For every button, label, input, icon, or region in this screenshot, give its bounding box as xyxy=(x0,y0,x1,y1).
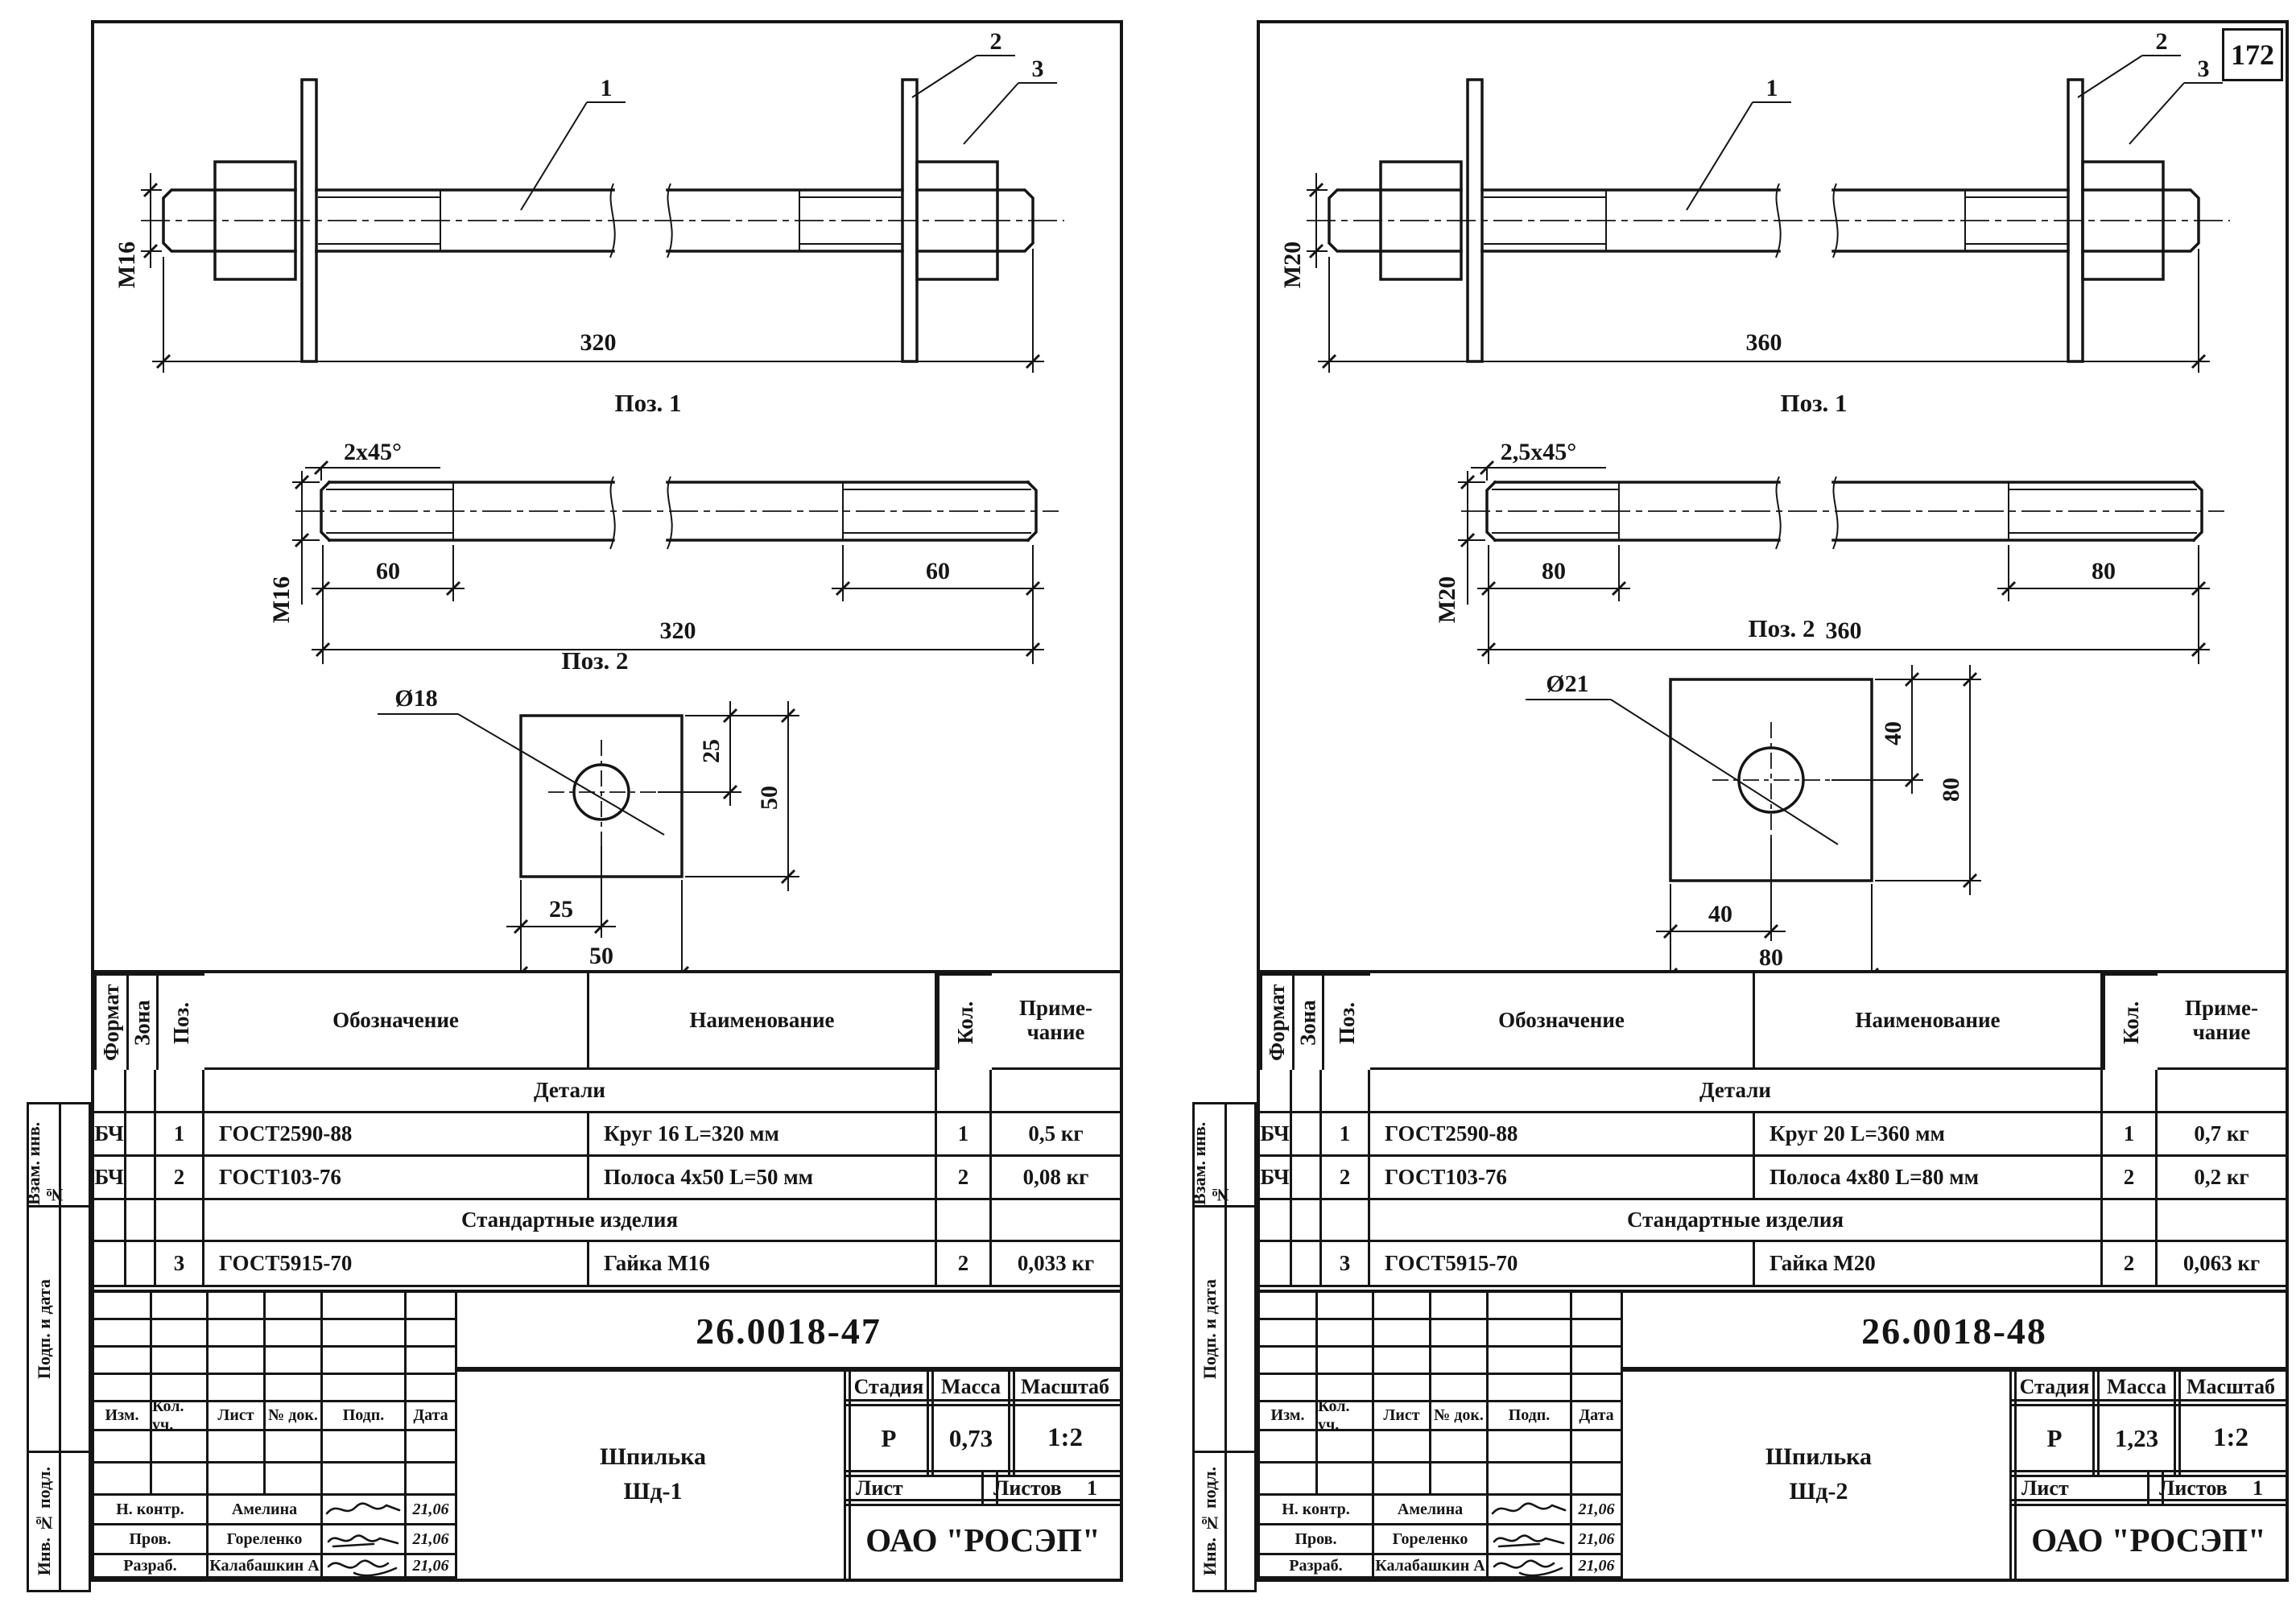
dim-side-horizontal: 50 xyxy=(589,943,613,969)
grid-cell xyxy=(94,1463,152,1496)
spec-row1-note: 0,7 кг xyxy=(2158,1113,2286,1157)
spec-row1-note: 0,5 кг xyxy=(992,1113,1120,1157)
grid-cell xyxy=(266,1375,323,1402)
dim-length-pos1: 360 xyxy=(1826,617,1862,644)
technical-drawing-left: 1 2 3 M16 320 Поз. 1 2x45° M16 60 60 320… xyxy=(94,23,1120,970)
sig-date-prov: 21,06 xyxy=(1572,1525,1623,1555)
spec-row1-zone xyxy=(1292,1113,1322,1157)
grid-cell xyxy=(1260,1320,1318,1348)
grid-cell xyxy=(323,1293,407,1320)
product-name-line2: Шд-2 xyxy=(1789,1474,1848,1509)
title-block: Изм. Кол. уч. Лист № док. Подп. Дата Н. … xyxy=(94,1290,1120,1579)
grid-cell xyxy=(152,1348,209,1375)
sidebar-box-podp: Подп. и дата xyxy=(1192,1205,1257,1453)
scale-value: 1:2 xyxy=(1008,1399,1120,1477)
dim-thread-right: 80 xyxy=(2092,558,2116,584)
grid-cell xyxy=(992,1070,1120,1113)
grid-cell xyxy=(266,1320,323,1348)
sidebar-box-inv: Инв. № подл. xyxy=(27,1451,91,1592)
grid-cell xyxy=(407,1375,457,1402)
dim-length-assembly: 360 xyxy=(1746,329,1782,356)
rev-header-izm: Изм. xyxy=(94,1402,152,1431)
grid-cell xyxy=(1374,1463,1431,1496)
col-header-note-line2: чание xyxy=(1027,1021,1085,1045)
signature-scribble xyxy=(1489,1555,1572,1579)
pos2-view-lines xyxy=(1526,665,1981,970)
grid-cell xyxy=(1374,1375,1431,1402)
spec-row2-format: БЧ xyxy=(94,1157,126,1200)
grid-cell xyxy=(152,1431,209,1463)
dim-diameter-pos1: M16 xyxy=(268,576,295,623)
grid-cell xyxy=(1431,1293,1489,1320)
sheets-label: Листов xyxy=(993,1476,1062,1501)
product-name: Шпилька Шд-1 xyxy=(455,1367,851,1579)
grid-cell xyxy=(323,1320,407,1348)
grid-cell xyxy=(126,1070,156,1113)
grid-cell xyxy=(1572,1463,1623,1496)
spec-row1-format: БЧ xyxy=(1260,1113,1292,1157)
grid-cell xyxy=(2103,1070,2158,1113)
pos1-title: Поз. 1 xyxy=(614,389,681,417)
grid-cell xyxy=(209,1375,266,1402)
revision-grid: Изм. Кол. уч. Лист № док. Подп. Дата Н. … xyxy=(1260,1293,1623,1579)
grid-cell xyxy=(266,1431,323,1463)
dim-side-vertical: 50 xyxy=(756,786,783,810)
spec-row3-pos: 3 xyxy=(1322,1242,1370,1287)
sig-name-prov: Гореленко xyxy=(1374,1525,1489,1555)
spec-row3-format xyxy=(1260,1242,1292,1287)
grid-cell xyxy=(94,1375,152,1402)
col-header-note: Приме- чание xyxy=(992,973,1120,1070)
grid-cell xyxy=(1431,1348,1489,1375)
sig-role-ncontr: Н. контр. xyxy=(1260,1496,1374,1525)
title-block: Изм. Кол. уч. Лист № док. Подп. Дата Н. … xyxy=(1260,1290,2286,1579)
spec-row3-name: Гайка М20 xyxy=(1755,1242,2103,1287)
dim-length-assembly: 320 xyxy=(580,329,617,356)
spec-row3-name: Гайка М16 xyxy=(589,1242,937,1287)
rev-header-dok: № док. xyxy=(1431,1402,1489,1431)
spec-row3-note: 0,033 кг xyxy=(992,1242,1120,1287)
pos2-title: Поз. 2 xyxy=(561,646,628,675)
specification-table: Формат Зона Поз. Обозначение Наименовани… xyxy=(1260,970,2286,1287)
grid-cell xyxy=(2158,1070,2286,1113)
sidebar-box-vzam: Взам. инв. № xyxy=(1192,1102,1257,1207)
spec-row1-name: Круг 16 L=320 мм xyxy=(589,1113,937,1157)
callout-1: 1 xyxy=(1766,75,1778,101)
product-name-line1: Шпилька xyxy=(600,1439,706,1475)
spec-row2-format: БЧ xyxy=(1260,1157,1292,1200)
spec-row1-qty: 1 xyxy=(2103,1113,2158,1157)
spec-row3-designation: ГОСТ5915-70 xyxy=(204,1242,589,1287)
rev-header-podp: Подп. xyxy=(323,1402,407,1431)
dim-diameter-assembly: M16 xyxy=(114,242,140,288)
callout-3: 3 xyxy=(2198,56,2210,82)
col-header-qty: Кол. xyxy=(937,973,992,1070)
rev-header-data: Дата xyxy=(407,1402,457,1431)
grid-cell xyxy=(152,1293,209,1320)
grid-cell xyxy=(1489,1293,1572,1320)
spec-row3-zone xyxy=(1292,1242,1322,1287)
col-header-zone: Зона xyxy=(1292,973,1322,1070)
sidebar-fill xyxy=(1227,1104,1254,1205)
pos1-title: Поз. 1 xyxy=(1780,389,1847,417)
spec-row3-pos: 3 xyxy=(156,1242,204,1287)
spec-row3-format xyxy=(94,1242,126,1287)
grid-cell xyxy=(1260,1293,1318,1320)
grid-cell xyxy=(1318,1463,1374,1496)
dim-chamfer: 2x45° xyxy=(344,439,402,465)
frame-sidebar: Взам. инв. № Подп. и дата Инв. № подл. xyxy=(1192,1102,1257,1592)
sidebar-fill xyxy=(61,1453,89,1590)
sig-date-razrab: 21,06 xyxy=(407,1555,457,1579)
sidebar-label-inv: Инв. № подл. xyxy=(1200,1467,1220,1575)
spec-row1-name: Круг 20 L=360 мм xyxy=(1755,1113,2103,1157)
dim-offset-horizontal: 40 xyxy=(1708,901,1732,927)
spec-row3-zone xyxy=(126,1242,156,1287)
grid-cell xyxy=(1572,1293,1623,1320)
spec-row2-qty: 2 xyxy=(2103,1157,2158,1200)
sidebar-box-vzam: Взам. инв. № xyxy=(27,1102,91,1207)
pos2-title: Поз. 2 xyxy=(1748,614,1815,642)
section-title-details: Детали xyxy=(204,1070,937,1113)
pos2-view-lines xyxy=(378,701,799,970)
grid-cell xyxy=(1572,1320,1623,1348)
spec-row2-designation: ГОСТ103-76 xyxy=(1370,1157,1755,1200)
drawing-sheet-left: 1 2 3 M16 320 Поз. 1 2x45° M16 60 60 320… xyxy=(91,20,1123,1582)
drawing-sheet-right: 172 1 2 3 M20 360 Поз. 1 2,5x45° M20 80 … xyxy=(1257,20,2289,1582)
assembly-view-lines xyxy=(1307,56,2230,373)
grid-cell xyxy=(1260,1375,1318,1402)
col-header-note-line2: чание xyxy=(2193,1021,2251,1045)
sidebar-fill xyxy=(61,1207,89,1451)
grid-cell xyxy=(2158,1200,2286,1242)
grid-cell xyxy=(1260,1431,1318,1463)
mass-value: 1,23 xyxy=(2092,1399,2181,1477)
col-header-name: Наименование xyxy=(589,973,937,1070)
section-title-standard: Стандартные изделия xyxy=(1370,1200,2103,1242)
revision-grid: Изм. Кол. уч. Лист № док. Подп. Дата Н. … xyxy=(94,1293,457,1579)
stage-value: Р xyxy=(2009,1399,2100,1477)
callout-1: 1 xyxy=(601,75,613,101)
grid-cell xyxy=(992,1200,1120,1242)
callout-3: 3 xyxy=(1032,56,1044,82)
grid-cell xyxy=(1318,1431,1374,1463)
sidebar-fill xyxy=(1227,1453,1254,1590)
grid-cell xyxy=(266,1463,323,1496)
sheets-label: Листов xyxy=(2159,1476,2228,1501)
grid-cell xyxy=(1292,1070,1322,1113)
assembly-view-lines xyxy=(141,56,1064,373)
dim-offset-vertical: 40 xyxy=(1880,721,1906,745)
grid-cell xyxy=(1374,1348,1431,1375)
grid-cell xyxy=(156,1070,204,1113)
spec-row1-zone xyxy=(126,1113,156,1157)
sidebar-label-podp: Подп. и дата xyxy=(1200,1279,1220,1379)
grid-cell xyxy=(1489,1431,1572,1463)
grid-cell xyxy=(1431,1463,1489,1496)
scale-value: 1:2 xyxy=(2174,1399,2286,1477)
sig-role-razrab: Разраб. xyxy=(94,1555,209,1579)
stage-value: Р xyxy=(844,1399,934,1477)
spec-row3-note: 0,063 кг xyxy=(2158,1242,2286,1287)
grid-cell xyxy=(1318,1375,1374,1402)
sig-role-prov: Пров. xyxy=(94,1525,209,1555)
grid-cell xyxy=(323,1431,407,1463)
dim-thread-left: 80 xyxy=(1542,558,1566,584)
col-header-pos: Поз. xyxy=(156,973,204,1070)
product-name: Шпилька Шд-2 xyxy=(1621,1367,2017,1579)
col-header-name: Наименование xyxy=(1755,973,2103,1070)
grid-cell xyxy=(266,1348,323,1375)
grid-cell xyxy=(152,1463,209,1496)
grid-cell xyxy=(1260,1070,1292,1113)
spec-row2-zone xyxy=(126,1157,156,1200)
col-header-designation: Обозначение xyxy=(204,973,589,1070)
rev-header-list: Лист xyxy=(209,1402,266,1431)
grid-cell xyxy=(323,1375,407,1402)
grid-cell xyxy=(94,1320,152,1348)
grid-cell xyxy=(1318,1320,1374,1348)
grid-cell xyxy=(1318,1348,1374,1375)
dim-length-pos1: 320 xyxy=(660,617,696,644)
spec-row1-format: БЧ xyxy=(94,1113,126,1157)
grid-cell xyxy=(2103,1200,2158,1242)
signature-scribble xyxy=(1489,1496,1572,1525)
col-header-format: Формат xyxy=(1260,973,1292,1070)
grid-cell xyxy=(937,1070,992,1113)
sig-date-prov: 21,06 xyxy=(407,1525,457,1555)
spec-row2-qty: 2 xyxy=(937,1157,992,1200)
col-header-zone: Зона xyxy=(126,973,156,1070)
grid-cell xyxy=(266,1293,323,1320)
rev-header-list: Лист xyxy=(1374,1402,1431,1431)
spec-row2-name: Полоса 4x80 L=80 мм xyxy=(1755,1157,2103,1200)
dim-side-horizontal: 80 xyxy=(1759,944,1783,970)
grid-cell xyxy=(1374,1293,1431,1320)
callout-2: 2 xyxy=(2156,28,2168,55)
sheets-count: 1 xyxy=(1087,1476,1097,1501)
sidebar-label-vzam: Взам. инв. № xyxy=(1189,1104,1231,1205)
grid-cell xyxy=(1489,1463,1572,1496)
sig-name-ncontr: Амелина xyxy=(1374,1496,1489,1525)
grid-cell xyxy=(1489,1375,1572,1402)
sidebar-label-inv: Инв. № подл. xyxy=(34,1467,55,1575)
grid-cell xyxy=(94,1293,152,1320)
sidebar-label-podp: Подп. и дата xyxy=(34,1279,55,1379)
rev-header-koluch: Кол. уч. xyxy=(1318,1402,1374,1431)
sig-date-ncontr: 21,06 xyxy=(1572,1496,1623,1525)
grid-cell xyxy=(1260,1348,1318,1375)
mass-value: 0,73 xyxy=(927,1399,1015,1477)
callout-2: 2 xyxy=(990,28,1002,55)
grid-cell xyxy=(407,1293,457,1320)
grid-cell xyxy=(152,1320,209,1348)
grid-cell xyxy=(94,1070,126,1113)
dim-offset-vertical: 25 xyxy=(698,739,725,763)
col-header-note-line1: Приме- xyxy=(1019,997,1092,1021)
grid-cell xyxy=(1489,1320,1572,1348)
grid-cell xyxy=(407,1463,457,1496)
grid-cell xyxy=(209,1431,266,1463)
sig-name-prov: Гореленко xyxy=(209,1525,323,1555)
col-header-qty: Кол. xyxy=(2103,973,2158,1070)
grid-cell xyxy=(209,1463,266,1496)
signature-scribble xyxy=(323,1555,407,1579)
specification-table: Формат Зона Поз. Обозначение Наименовани… xyxy=(94,970,1120,1287)
signature-scribble xyxy=(323,1525,407,1555)
sidebar-box-podp: Подп. и дата xyxy=(27,1205,91,1453)
rev-header-dok: № док. xyxy=(266,1402,323,1431)
spec-row1-designation: ГОСТ2590-88 xyxy=(204,1113,589,1157)
grid-cell xyxy=(1260,1200,1292,1242)
col-header-note: Приме- чание xyxy=(2158,973,2286,1070)
grid-cell xyxy=(1489,1348,1572,1375)
grid-cell xyxy=(1322,1070,1370,1113)
spec-row2-zone xyxy=(1292,1157,1322,1200)
spec-row1-pos: 1 xyxy=(156,1113,204,1157)
company-name: ОАО "РОСЭП" xyxy=(844,1499,1120,1579)
frame-sidebar: Взам. инв. № Подп. и дата Инв. № подл. xyxy=(27,1102,91,1592)
dim-offset-horizontal: 25 xyxy=(549,896,573,923)
sig-name-ncontr: Амелина xyxy=(209,1496,323,1525)
col-header-note-line1: Приме- xyxy=(2185,997,2258,1021)
spec-row1-pos: 1 xyxy=(1322,1113,1370,1157)
document-number: 26.0018-48 xyxy=(1621,1293,2286,1372)
rev-header-data: Дата xyxy=(1572,1402,1623,1431)
section-title-details: Детали xyxy=(1370,1070,2103,1113)
rev-header-izm: Изм. xyxy=(1260,1402,1318,1431)
rev-header-podp: Подп. xyxy=(1489,1402,1572,1431)
spec-row2-note: 0,2 кг xyxy=(2158,1157,2286,1200)
grid-cell xyxy=(1431,1431,1489,1463)
product-name-line1: Шпилька xyxy=(1765,1439,1872,1475)
grid-cell xyxy=(323,1463,407,1496)
grid-cell xyxy=(209,1293,266,1320)
spec-row3-qty: 2 xyxy=(2103,1242,2158,1287)
dim-diameter-pos1: M20 xyxy=(1434,576,1460,623)
grid-cell xyxy=(1572,1431,1623,1463)
sidebar-box-inv: Инв. № подл. xyxy=(1192,1451,1257,1592)
spec-row3-qty: 2 xyxy=(937,1242,992,1287)
sidebar-label-vzam: Взам. инв. № xyxy=(23,1104,65,1205)
dim-chamfer: 2,5x45° xyxy=(1501,439,1577,465)
sig-name-razrab: Калабашкин А xyxy=(209,1555,323,1579)
grid-cell xyxy=(937,1200,992,1242)
grid-cell xyxy=(407,1431,457,1463)
dim-hole-diameter: Ø18 xyxy=(394,685,437,712)
grid-cell xyxy=(1374,1431,1431,1463)
spec-row3-designation: ГОСТ5915-70 xyxy=(1370,1242,1755,1287)
sidebar-fill xyxy=(1227,1207,1254,1451)
grid-cell xyxy=(1260,1463,1318,1496)
grid-cell xyxy=(1572,1348,1623,1375)
grid-cell xyxy=(156,1200,204,1242)
rev-header-koluch: Кол. уч. xyxy=(152,1402,209,1431)
sig-date-ncontr: 21,06 xyxy=(407,1496,457,1525)
grid-cell xyxy=(152,1375,209,1402)
dim-thread-left: 60 xyxy=(376,558,400,584)
grid-cell xyxy=(94,1348,152,1375)
grid-cell xyxy=(407,1348,457,1375)
spec-row2-name: Полоса 4x50 L=50 мм xyxy=(589,1157,937,1200)
grid-cell xyxy=(1431,1320,1489,1348)
col-header-pos: Поз. xyxy=(1322,973,1370,1070)
document-number: 26.0018-47 xyxy=(455,1293,1120,1372)
grid-cell xyxy=(1292,1200,1322,1242)
grid-cell xyxy=(1322,1200,1370,1242)
dim-side-vertical: 80 xyxy=(1938,778,1964,802)
signature-scribble xyxy=(1489,1525,1572,1555)
sig-role-prov: Пров. xyxy=(1260,1525,1374,1555)
spec-row2-note: 0,08 кг xyxy=(992,1157,1120,1200)
grid-cell xyxy=(209,1320,266,1348)
technical-drawing-right: 1 2 3 M20 360 Поз. 1 2,5x45° M20 80 80 3… xyxy=(1260,23,2286,970)
col-header-designation: Обозначение xyxy=(1370,973,1755,1070)
product-name-line2: Шд-1 xyxy=(623,1474,682,1509)
sig-name-razrab: Калабашкин А xyxy=(1374,1555,1489,1579)
grid-cell xyxy=(1318,1293,1374,1320)
spec-row2-designation: ГОСТ103-76 xyxy=(204,1157,589,1200)
dim-diameter-assembly: M20 xyxy=(1279,242,1306,288)
sig-role-ncontr: Н. контр. xyxy=(94,1496,209,1525)
grid-cell xyxy=(209,1348,266,1375)
grid-cell xyxy=(94,1200,126,1242)
grid-cell xyxy=(94,1431,152,1463)
spec-row2-pos: 2 xyxy=(1322,1157,1370,1200)
section-title-standard: Стандартные изделия xyxy=(204,1200,937,1242)
sig-date-razrab: 21,06 xyxy=(1572,1555,1623,1579)
sig-role-razrab: Разраб. xyxy=(1260,1555,1374,1579)
grid-cell xyxy=(1374,1320,1431,1348)
grid-cell xyxy=(126,1200,156,1242)
grid-cell xyxy=(1572,1375,1623,1402)
grid-cell xyxy=(1431,1375,1489,1402)
dim-thread-right: 60 xyxy=(926,558,950,584)
grid-cell xyxy=(407,1320,457,1348)
sheets-count: 1 xyxy=(2253,1476,2263,1501)
sidebar-fill xyxy=(61,1104,89,1205)
spec-row2-pos: 2 xyxy=(156,1157,204,1200)
spec-row1-qty: 1 xyxy=(937,1113,992,1157)
dim-hole-diameter: Ø21 xyxy=(1546,671,1588,697)
company-name: ОАО "РОСЭП" xyxy=(2009,1499,2286,1579)
grid-cell xyxy=(323,1348,407,1375)
spec-row1-designation: ГОСТ2590-88 xyxy=(1370,1113,1755,1157)
col-header-format: Формат xyxy=(94,973,126,1070)
signature-scribble xyxy=(323,1496,407,1525)
